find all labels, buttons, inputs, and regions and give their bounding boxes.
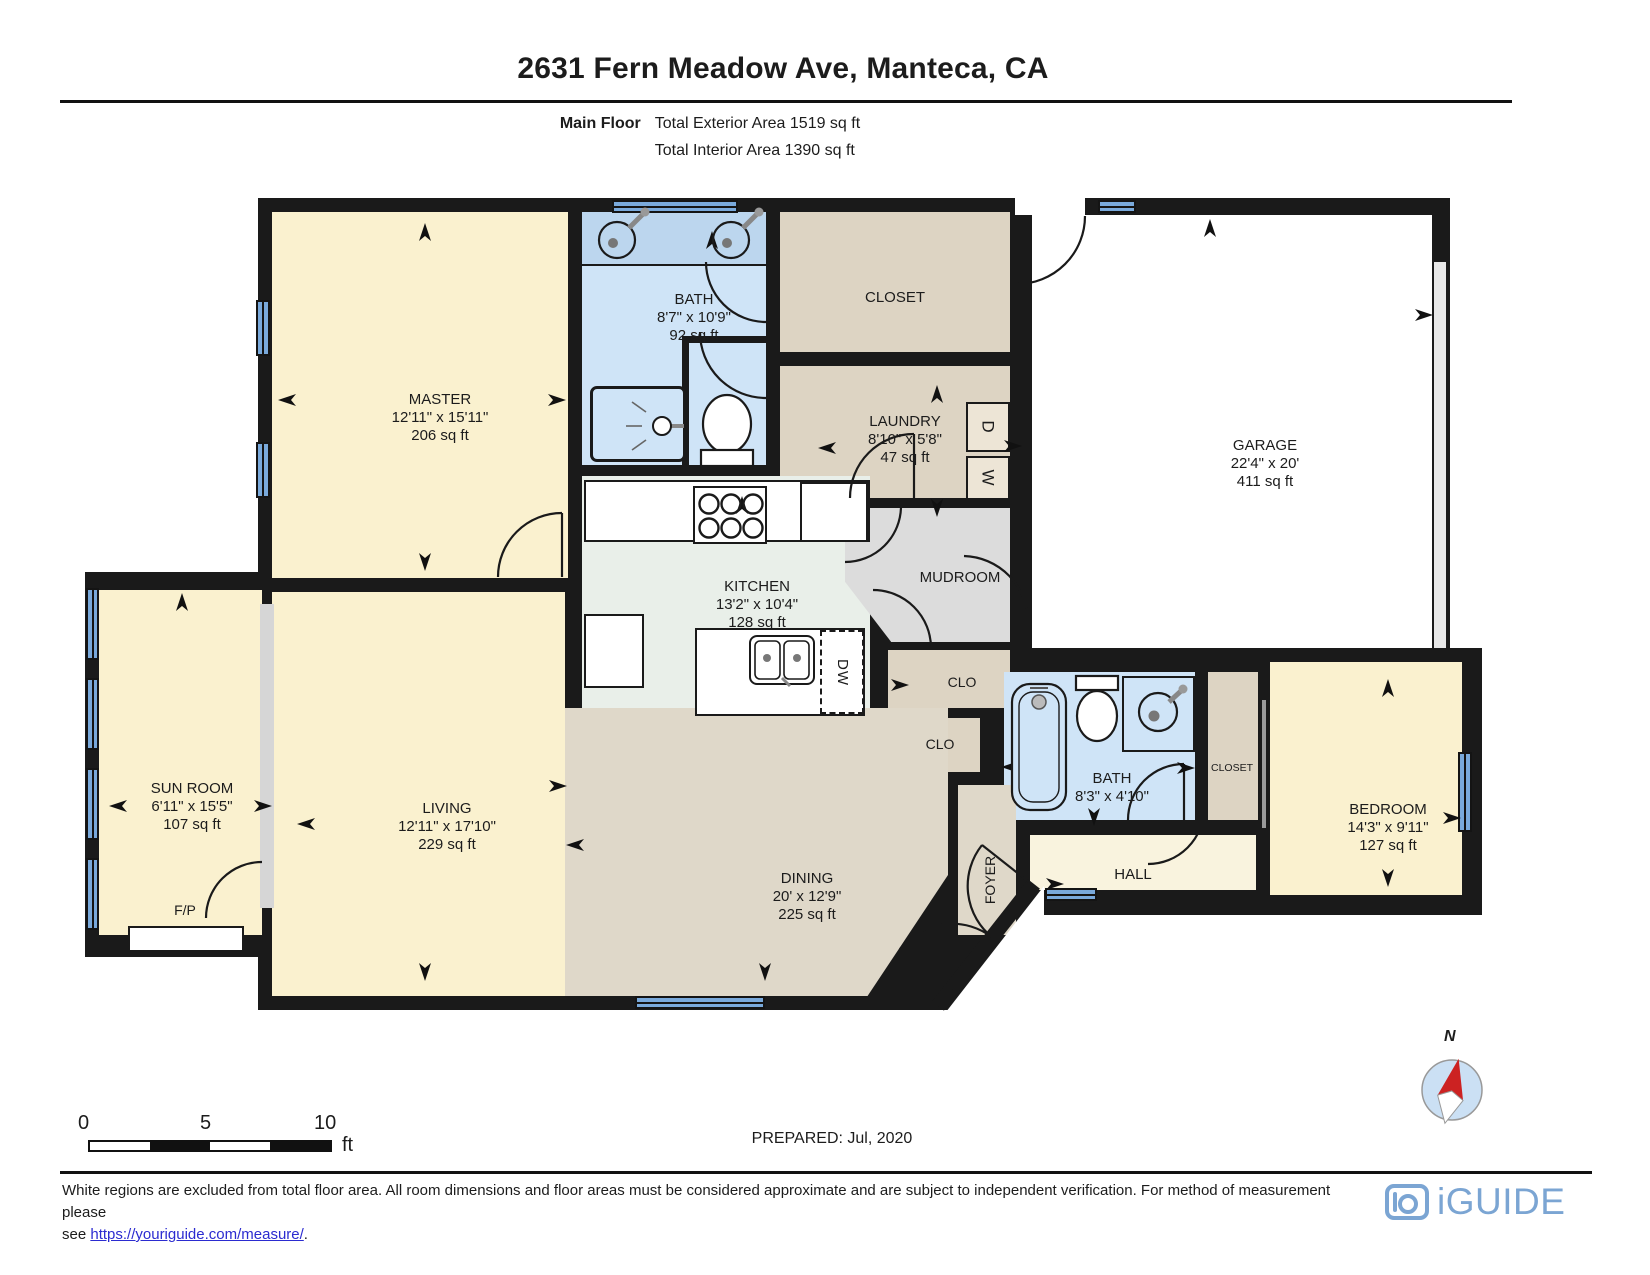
label-fireplace: F/P (174, 901, 196, 919)
label-bath-master: BATH8'7" x 10'9"92 sq ft (657, 291, 731, 345)
label-kitchen: KITCHEN13'2" x 10'4"128 sq ft (716, 578, 798, 632)
label-closet-master: CLOSET (865, 289, 925, 307)
label-closet-2: CLO (926, 735, 955, 753)
label-garage: GARAGE22'4" x 20'411 sq ft (1231, 437, 1300, 491)
label-closet-1: CLO (948, 673, 977, 691)
label-living: LIVING12'11" x 17'10"229 sq ft (398, 800, 496, 854)
floorplan-annotations (0, 0, 1650, 1275)
label-master: MASTER12'11" x 15'11"206 sq ft (392, 391, 489, 445)
label-laundry: LAUNDRY8'10" x 5'8"47 sq ft (868, 413, 942, 467)
label-hall: HALL (1114, 866, 1152, 884)
label-sunroom: SUN ROOM6'11" x 15'5"107 sq ft (151, 780, 234, 834)
label-bath-hall: BATH8'3" x 4'10" (1075, 770, 1149, 806)
label-dining: DINING20' x 12'9"225 sq ft (773, 870, 842, 924)
label-foyer: FOYER (981, 856, 999, 904)
compass-icon (1422, 1056, 1482, 1126)
label-mudroom: MUDROOM (920, 569, 1001, 587)
label-bedroom: BEDROOM14'3" x 9'11"127 sq ft (1347, 801, 1428, 855)
label-closet-hall: CLOSET (1211, 762, 1253, 774)
foyer-exterior-wedge (946, 886, 1044, 1012)
